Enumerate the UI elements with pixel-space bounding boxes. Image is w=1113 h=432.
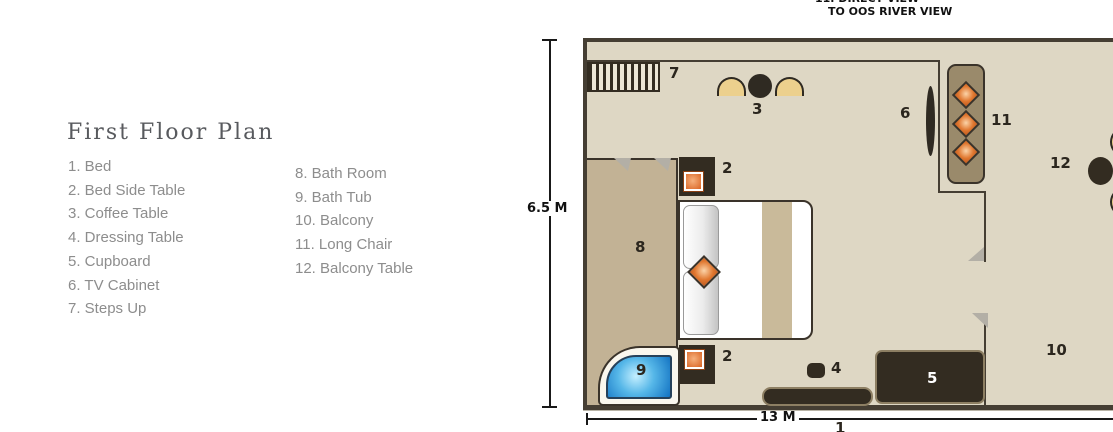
marker-cupboard: 5 <box>927 369 937 387</box>
marker-tv-cabinet: 6 <box>900 104 910 122</box>
floor-plan-page: First Floor Plan 1. Bed 2. Bed Side Tabl… <box>0 0 1113 432</box>
marker-dressing-table: 4 <box>831 359 841 377</box>
marker-long-chair: 11 <box>991 111 1012 129</box>
legend-column-2: 8. Bath Room 9. Bath Tub 10. Balcony 11.… <box>295 162 413 281</box>
long-chair-cushion-2 <box>952 110 980 138</box>
legend-item-balcony-table: 12. Balcony Table <box>295 257 413 281</box>
legend-item-tv-cabinet: 6. TV Cabinet <box>68 274 185 298</box>
long-chair-cushion-1 <box>952 81 980 109</box>
legend-item-dressing-table: 4. Dressing Table <box>68 226 185 250</box>
steps-up <box>587 62 660 92</box>
direct-view-note-line2: TO OOS RIVER VIEW <box>828 6 952 19</box>
marker-bed-side-table-bottom: 2 <box>722 347 732 365</box>
legend-column-1: 1. Bed 2. Bed Side Table 3. Coffee Table… <box>68 155 185 321</box>
height-dimension-cap-bottom <box>542 406 557 408</box>
coffee-table <box>748 74 772 98</box>
wall-bottom-shadow <box>583 410 1113 411</box>
long-chair <box>947 64 985 184</box>
direct-view-note: 11. DIRECT VIEW TO OOS RIVER VIEW <box>815 0 952 18</box>
legend-item-cupboard: 5. Cupboard <box>68 250 185 274</box>
legend-item-long-chair: 11. Long Chair <box>295 233 413 257</box>
tv-cabinet <box>926 86 935 156</box>
width-dimension-label: 13 M <box>757 410 799 425</box>
marker-bed-side-table-top: 2 <box>722 159 732 177</box>
bed-side-table-bottom <box>679 345 715 384</box>
height-dimension-cap-top <box>542 39 557 41</box>
legend-item-bed: 1. Bed <box>68 155 185 179</box>
legend-item-bath-room: 8. Bath Room <box>295 162 413 186</box>
bed-side-table-top <box>679 157 715 196</box>
marker-steps-up: 7 <box>669 64 679 82</box>
long-chair-cushion-3 <box>952 138 980 166</box>
dressing-table <box>762 387 873 406</box>
balcony-table <box>1088 157 1113 185</box>
cupboard: 5 <box>875 350 985 404</box>
legend-item-steps-up: 7. Steps Up <box>68 297 185 321</box>
bed: 1 <box>678 200 813 340</box>
balcony-door-swing-upper <box>968 247 984 261</box>
marker-bath-tub: 9 <box>636 361 646 379</box>
wall-top <box>583 38 1113 42</box>
page-title: First Floor Plan <box>67 120 274 145</box>
marker-balcony: 10 <box>1046 341 1067 359</box>
marker-bath-room: 8 <box>635 238 645 256</box>
bed-side-table-top-lamp <box>684 172 703 191</box>
legend-item-bed-side-table: 2. Bed Side Table <box>68 179 185 203</box>
inner-wall-right-upper <box>938 60 940 193</box>
dressing-table-stool <box>807 363 825 378</box>
coffee-chair-right <box>775 77 804 96</box>
inner-wall-step <box>938 191 986 193</box>
bed-side-table-bottom-lamp <box>685 350 704 369</box>
marker-coffee-table: 3 <box>752 100 762 118</box>
legend-item-bath-tub: 9. Bath Tub <box>295 186 413 210</box>
height-dimension-label: 6.5 M <box>524 201 571 216</box>
legend-item-balcony: 10. Balcony <box>295 209 413 233</box>
width-dimension-cap-left <box>586 413 588 425</box>
floor-plan-room: 7 3 6 11 12 8 2 <box>583 38 1113 410</box>
inner-wall-right-middle <box>984 191 986 262</box>
legend-item-coffee-table: 3. Coffee Table <box>68 202 185 226</box>
width-dimension-line <box>587 418 1113 420</box>
coffee-chair-left <box>717 77 746 96</box>
height-dimension-line <box>549 40 551 408</box>
marker-bed: 1 <box>835 419 845 432</box>
marker-balcony-table: 12 <box>1050 154 1071 172</box>
bed-blanket-stripe <box>762 202 792 338</box>
